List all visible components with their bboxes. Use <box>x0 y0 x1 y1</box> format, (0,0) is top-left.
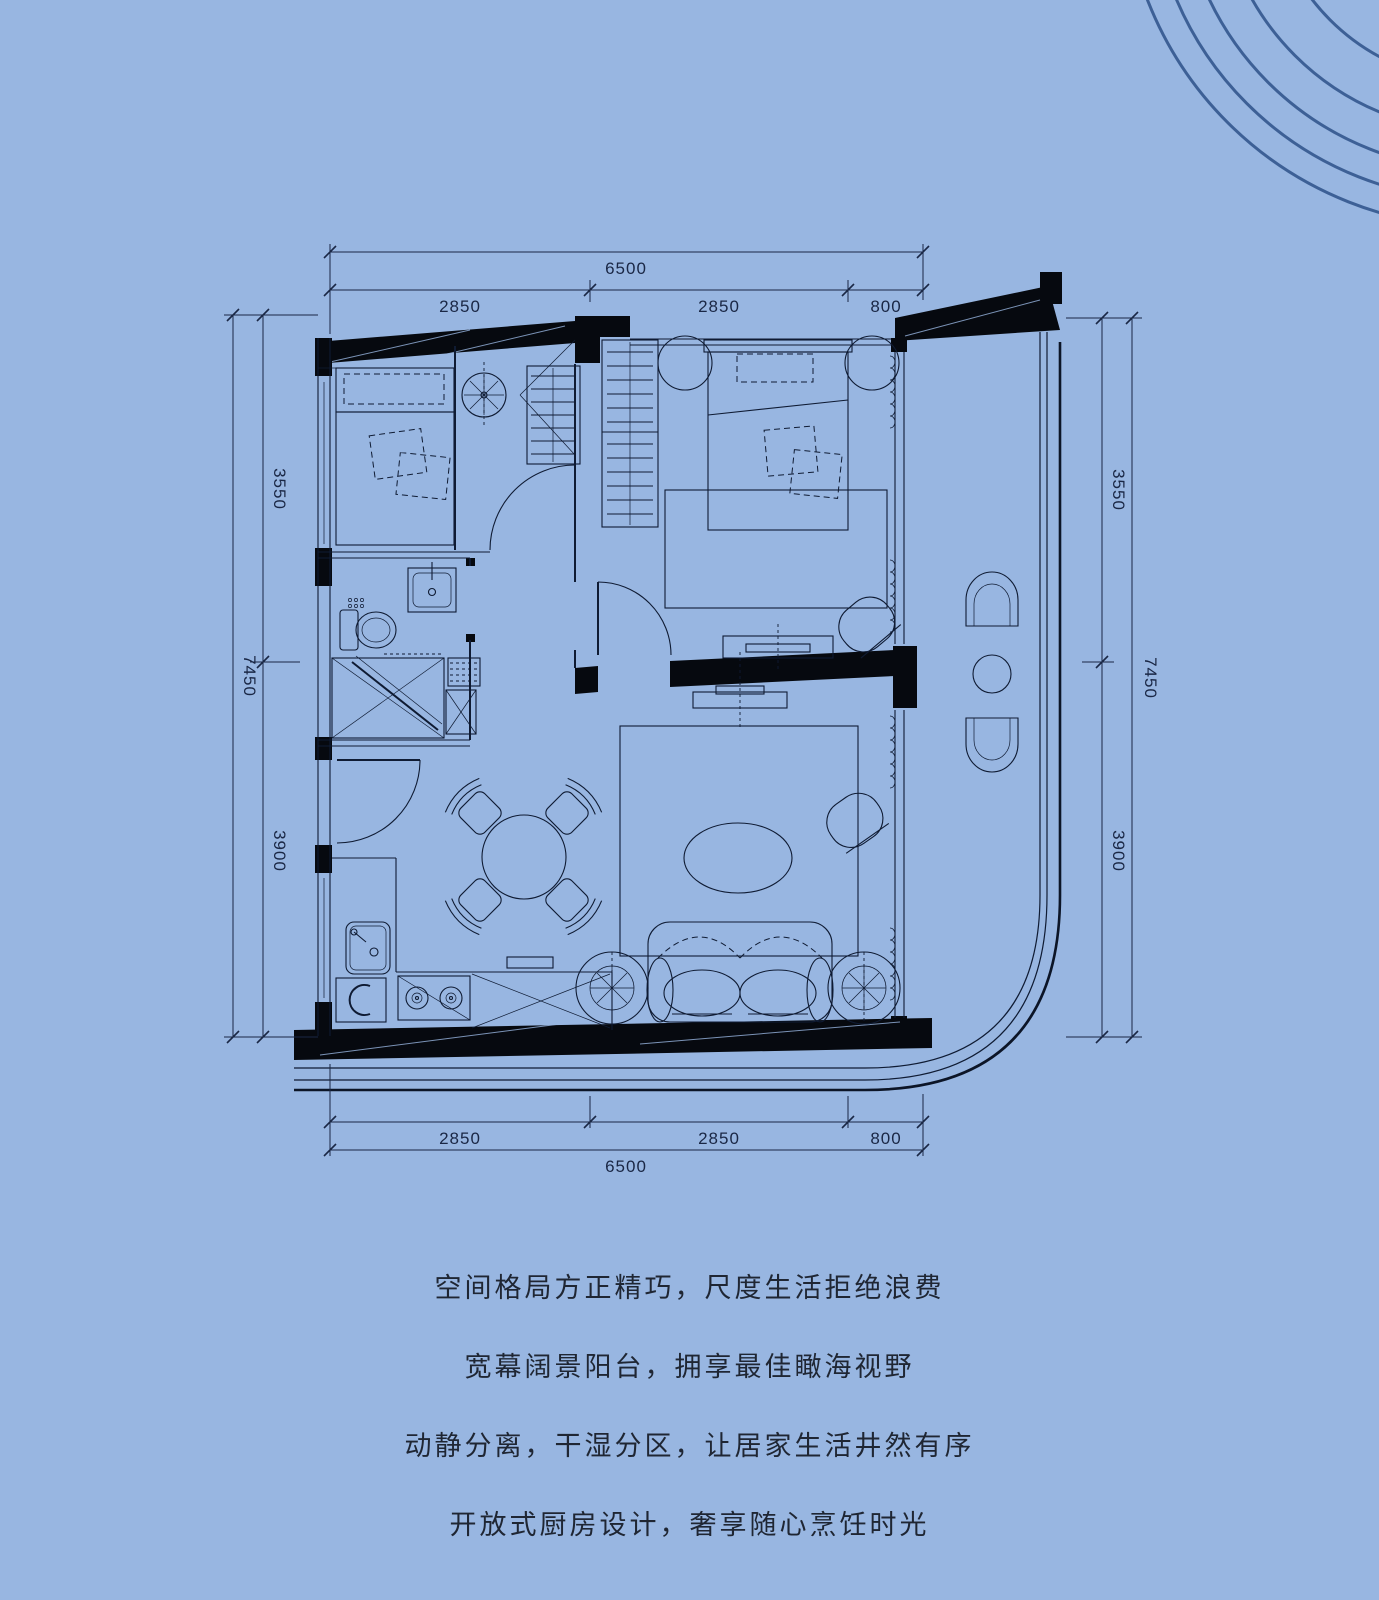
caption-line: 空间格局方正精巧，尺度生活拒绝浪费 <box>435 1266 945 1305</box>
marketing-captions: 空间格局方正精巧，尺度生活拒绝浪费 宽幕阔景阳台，拥享最佳瞰海视野 动静分离，干… <box>0 1266 1379 1542</box>
caption-line: 动静分离，干湿分区，让居家生活井然有序 <box>405 1424 975 1463</box>
wardrobe1-symbol <box>602 340 658 527</box>
caption-line: 宽幕阔景阳台，拥享最佳瞰海视野 <box>465 1345 915 1384</box>
structure-lines <box>318 338 904 1036</box>
bathroom-symbols <box>332 562 480 738</box>
side-lamp-icons <box>576 952 900 1024</box>
dim-label-right-total: 7450 <box>1141 657 1160 699</box>
balcony-chair-symbols <box>966 572 1018 772</box>
bed2-symbol <box>336 368 454 545</box>
dim-label-top-seg3: 800 <box>870 297 901 316</box>
walls-layer <box>294 272 1062 1060</box>
decor-arcs <box>1123 0 1379 227</box>
dim-label-left-seg2: 3900 <box>270 830 289 872</box>
dim-label-left-seg1: 3550 <box>270 468 289 510</box>
dim-label-top-total: 6500 <box>605 259 647 278</box>
bed1-symbol <box>658 336 899 608</box>
dim-label-bottom-seg3: 800 <box>870 1129 901 1148</box>
dimension-left: 7450 3550 3900 <box>224 309 318 1043</box>
sofa-symbol <box>647 922 833 1022</box>
dim-label-left-total: 7450 <box>240 655 259 697</box>
dimension-bottom: 2850 2850 800 6500 <box>324 1064 929 1176</box>
armchair1-symbol <box>830 588 904 661</box>
armchair2-symbol <box>818 785 891 856</box>
dim-label-right-seg1: 3550 <box>1109 469 1128 511</box>
dim-label-bottom-total: 6500 <box>605 1157 647 1176</box>
coffee-table-symbol <box>684 823 792 893</box>
dimension-right: 3550 3900 7450 <box>1066 312 1160 1043</box>
dim-label-top-seg1: 2850 <box>439 297 481 316</box>
dim-label-top-seg2: 2850 <box>698 297 740 316</box>
caption-line: 开放式厨房设计，奢享随心烹饪时光 <box>450 1503 930 1542</box>
door-symbols <box>337 465 671 843</box>
dining-set-symbol <box>442 775 605 938</box>
ceiling-fan-icon <box>462 340 575 455</box>
dim-label-bottom-seg2: 2850 <box>698 1129 740 1148</box>
wardrobe2-symbol <box>527 366 580 464</box>
dim-label-bottom-seg1: 2850 <box>439 1129 481 1148</box>
dim-label-right-seg2: 3900 <box>1109 830 1128 872</box>
